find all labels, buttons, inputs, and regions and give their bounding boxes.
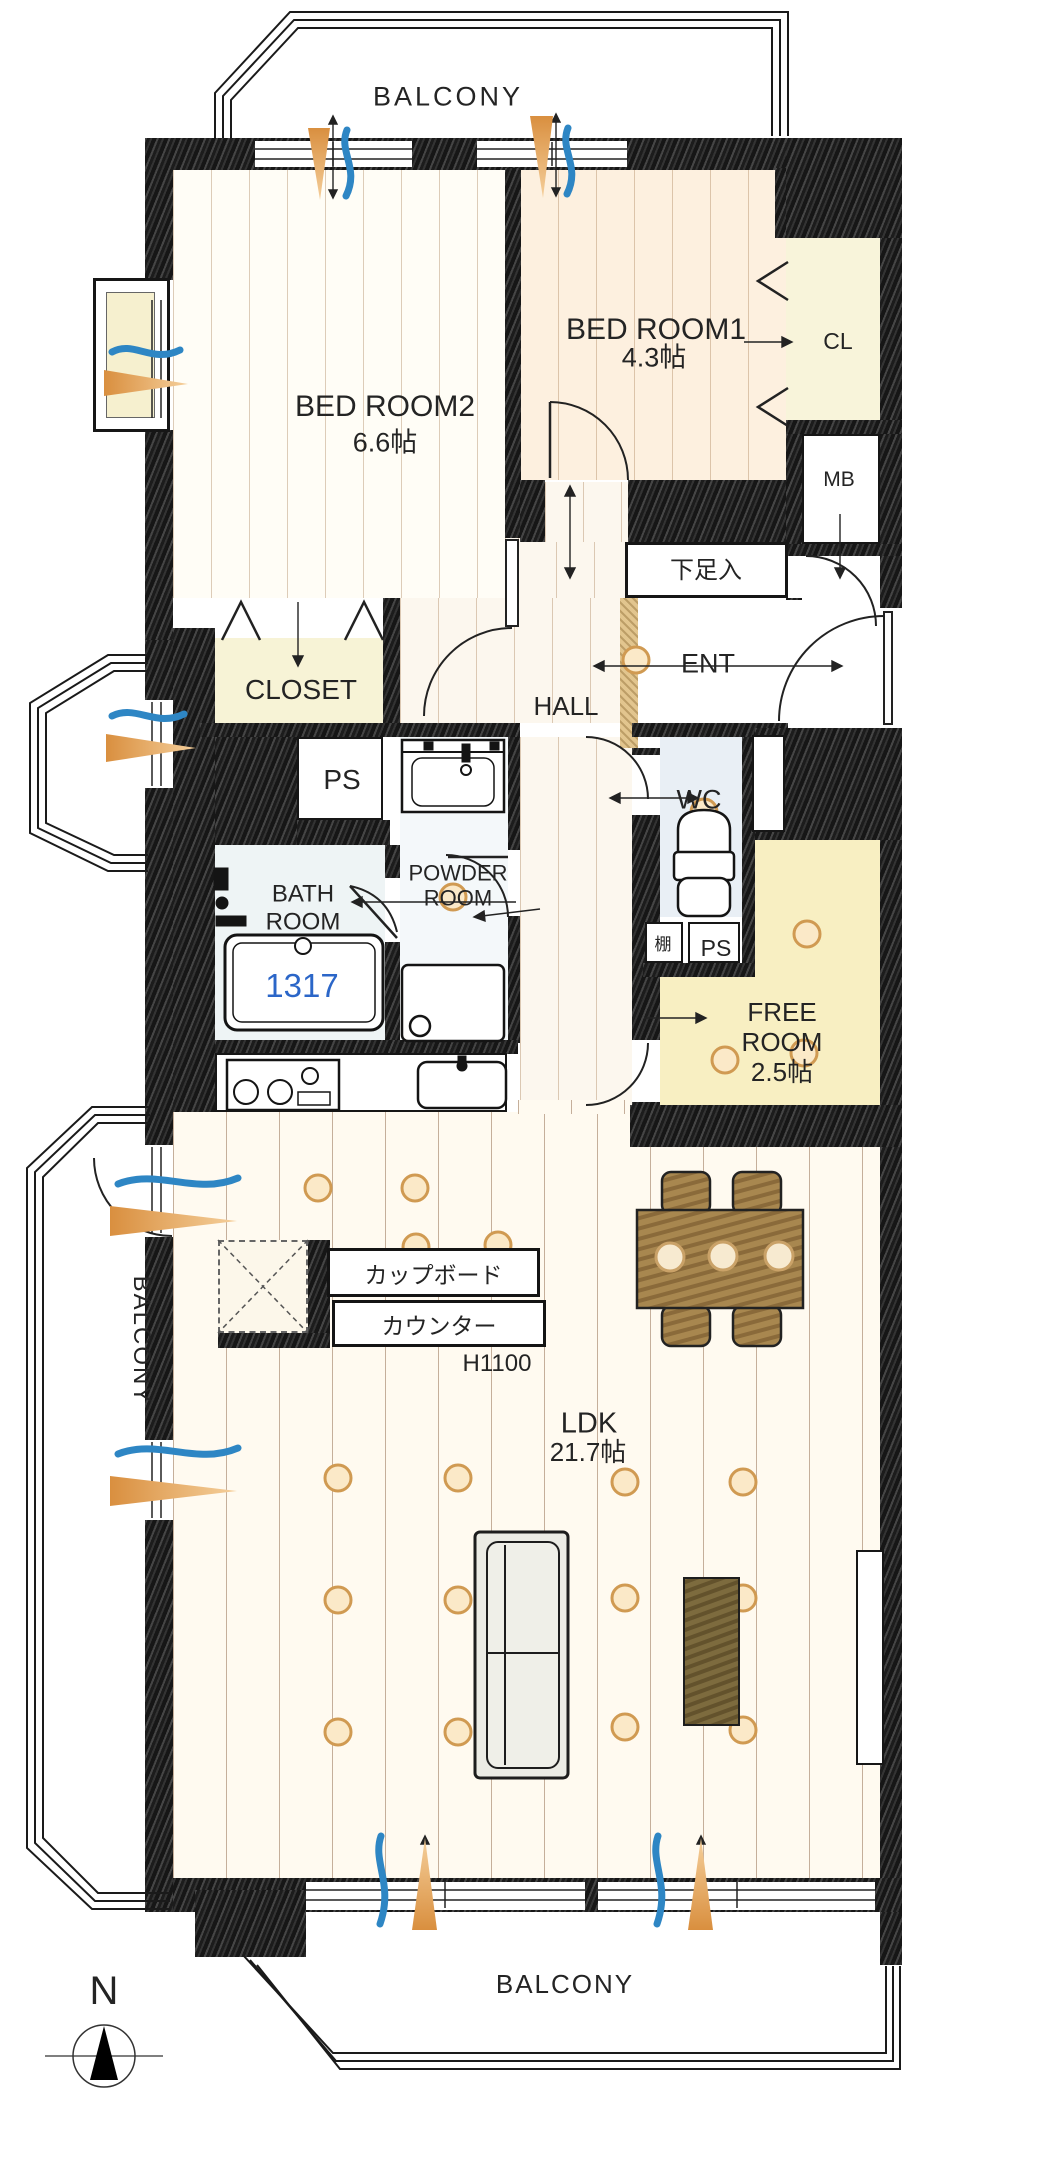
cupboard-label-box: カップボード bbox=[327, 1248, 540, 1297]
room-label-shelf: 棚 bbox=[655, 935, 672, 955]
room-label-shoebox: 下足入 bbox=[670, 557, 742, 585]
room-label-free-room: FREE ROOM bbox=[730, 998, 834, 1058]
room-label-ps-upper: PS bbox=[323, 764, 360, 796]
size-label-bedroom1: 4.3帖 bbox=[622, 342, 687, 373]
balcony-left-label: BALCONY bbox=[127, 1276, 155, 1405]
cupboard-x bbox=[218, 1240, 308, 1333]
washing-machine bbox=[402, 965, 504, 1041]
counter-label-box: カウンター bbox=[332, 1300, 546, 1347]
washbasin bbox=[402, 740, 504, 812]
compass-north-icon bbox=[45, 2025, 163, 2087]
cupboard-label: カップボード bbox=[365, 1256, 503, 1290]
room-label-closet: CLOSET bbox=[245, 674, 357, 706]
room-label-ps-lower: PS bbox=[701, 935, 732, 961]
balcony-bottom-label: BALCONY bbox=[496, 1970, 634, 2000]
room-label-ldk: LDK bbox=[561, 1407, 617, 1440]
counter-label: カウンター bbox=[382, 1307, 497, 1341]
sofa bbox=[475, 1532, 568, 1778]
room-label-powder: POWDER ROOM bbox=[402, 861, 514, 912]
plan-linework bbox=[0, 0, 1053, 2157]
compass-north-label: N bbox=[90, 1968, 119, 2014]
room-label-bath: BATH ROOM bbox=[261, 880, 345, 935]
size-label-free-room: 2.5帖 bbox=[751, 1058, 813, 1088]
room-label-entrance: ENT bbox=[681, 648, 735, 679]
room-label-bedroom2: BED ROOM2 bbox=[295, 390, 475, 425]
tv-board bbox=[684, 1578, 739, 1725]
toilet bbox=[674, 810, 734, 916]
kitchen-sink bbox=[418, 1056, 506, 1108]
door-swings bbox=[94, 402, 892, 1236]
pendant-lights bbox=[656, 1242, 793, 1271]
bathtub-size-label: 1317 bbox=[265, 967, 338, 1005]
counter-height-label: H1100 bbox=[463, 1350, 532, 1378]
stove bbox=[227, 1060, 339, 1110]
room-label-cl: CL bbox=[823, 328, 852, 354]
room-label-hall: HALL bbox=[533, 692, 598, 722]
room-label-mb: MB bbox=[823, 468, 855, 492]
room-label-wc: WC bbox=[677, 784, 722, 815]
balcony-top-label: BALCONY bbox=[373, 81, 523, 112]
size-label-ldk: 21.7帖 bbox=[550, 1438, 627, 1468]
floor-plan: カップボード カウンター BALCONY BED ROOM2 6.6帖 BED … bbox=[0, 0, 1053, 2157]
size-label-bedroom2: 6.6帖 bbox=[353, 427, 418, 458]
